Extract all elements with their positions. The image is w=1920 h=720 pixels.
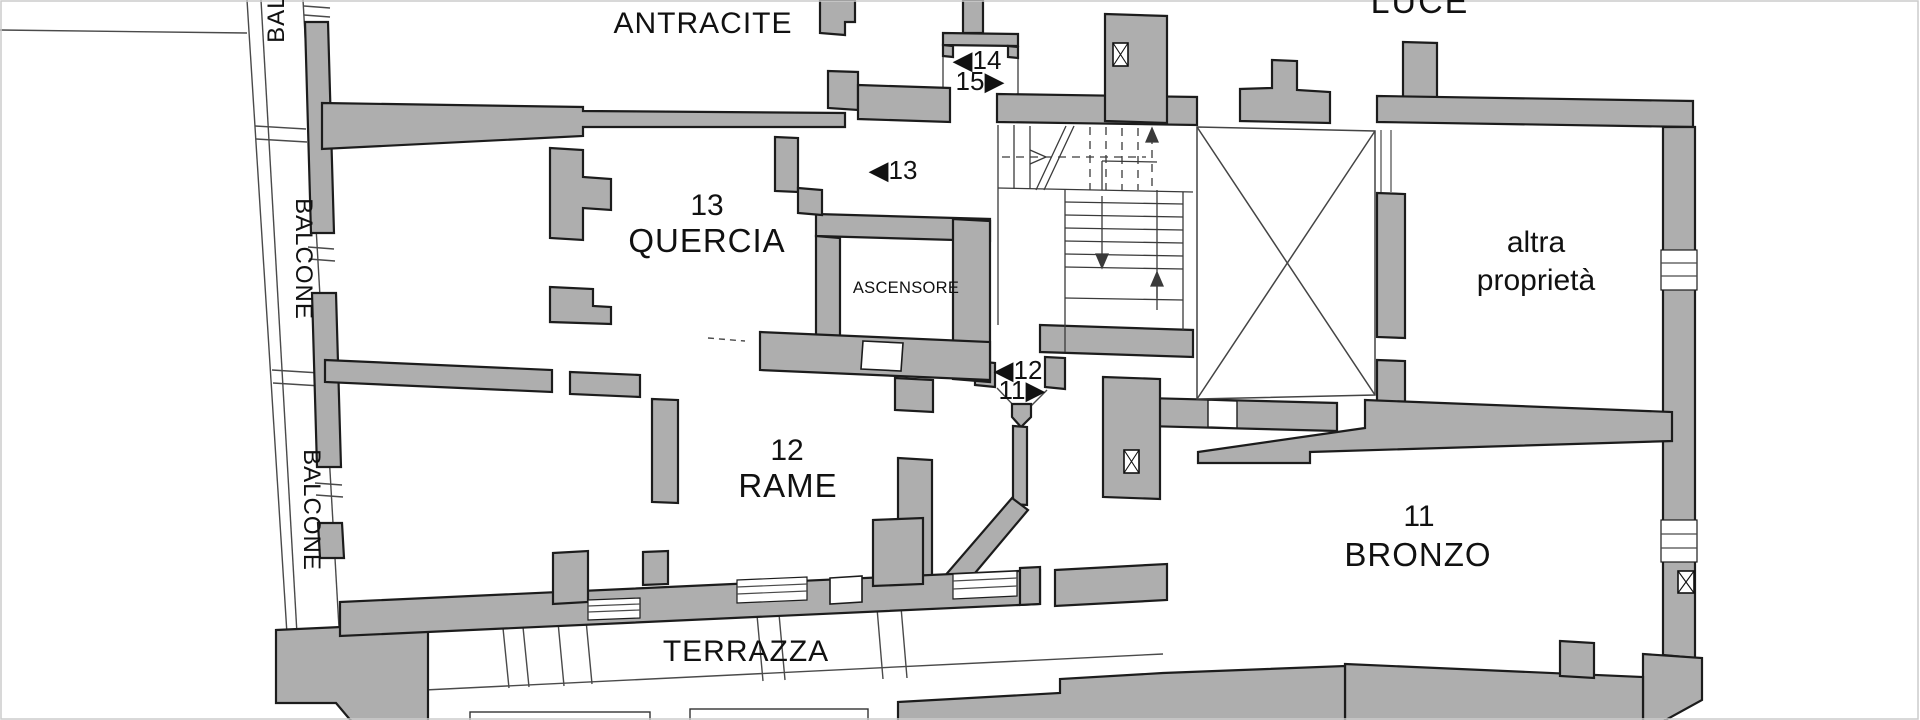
light-well [1197, 127, 1375, 399]
label-apartment-13-name: QUERCIA [628, 222, 785, 259]
label-balcony-lower: BALCONE [298, 449, 325, 571]
label-apartment-11-number: 11 [1403, 500, 1434, 533]
door-marker-11: 11▶ [999, 375, 1046, 405]
label-apartment-12-number: 12 [770, 434, 803, 467]
floor-plan-canvas: ANTRACITE LUCE ◀14 15▶ ◀13 13 QUERCIA AS… [0, 0, 1920, 720]
label-light-well: LUCE [1371, 0, 1470, 21]
floor-plan-drawing: ANTRACITE LUCE ◀14 15▶ ◀13 13 QUERCIA AS… [0, 0, 1920, 720]
label-apartment-14-name: ANTRACITE [613, 7, 792, 40]
label-terrace: TERRAZZA [663, 635, 829, 668]
label-balcony-top: BALCONE [263, 0, 290, 43]
label-apartment-11-name: BRONZO [1344, 536, 1491, 573]
label-other-property-line1: altra [1507, 226, 1566, 259]
label-apartment-12-name: RAME [738, 467, 837, 504]
door-marker-15: 15▶ [956, 66, 1005, 96]
label-other-property-line2: proprietà [1477, 264, 1596, 297]
label-apartment-13-number: 13 [690, 189, 723, 222]
label-balcony-middle: BALCONE [290, 198, 317, 320]
staircase [998, 125, 1193, 352]
label-elevator: ASCENSORE [853, 279, 959, 297]
door-marker-13: ◀13 [869, 155, 918, 185]
walls [276, 0, 1702, 720]
